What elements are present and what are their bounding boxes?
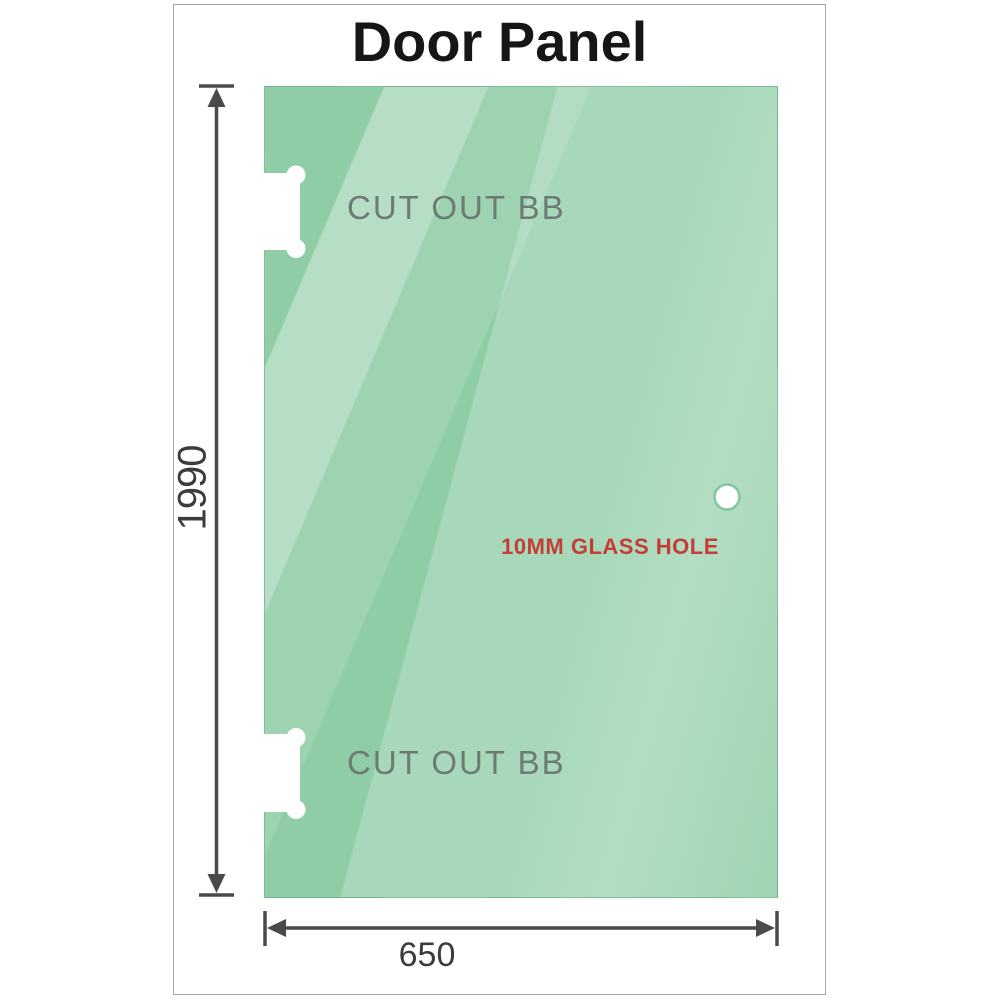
height-dimension-value: 1990 bbox=[171, 446, 216, 531]
diagram-overlay bbox=[0, 0, 1000, 1000]
width-dimension-value: 650 bbox=[399, 936, 456, 975]
glass-hole-label: 10MM GLASS HOLE bbox=[460, 534, 760, 560]
horizontal-dimension-arrow-icon bbox=[265, 911, 777, 946]
hinge-cutout-bottom-icon bbox=[258, 728, 306, 819]
glass-hole-icon bbox=[715, 485, 740, 510]
cutout-bottom-label: CUT OUT BB bbox=[347, 744, 566, 782]
hinge-cutout-top-icon bbox=[258, 166, 306, 259]
cutout-top-label: CUT OUT BB bbox=[347, 189, 566, 227]
diagram-canvas: Door Panel bbox=[0, 0, 1000, 1000]
